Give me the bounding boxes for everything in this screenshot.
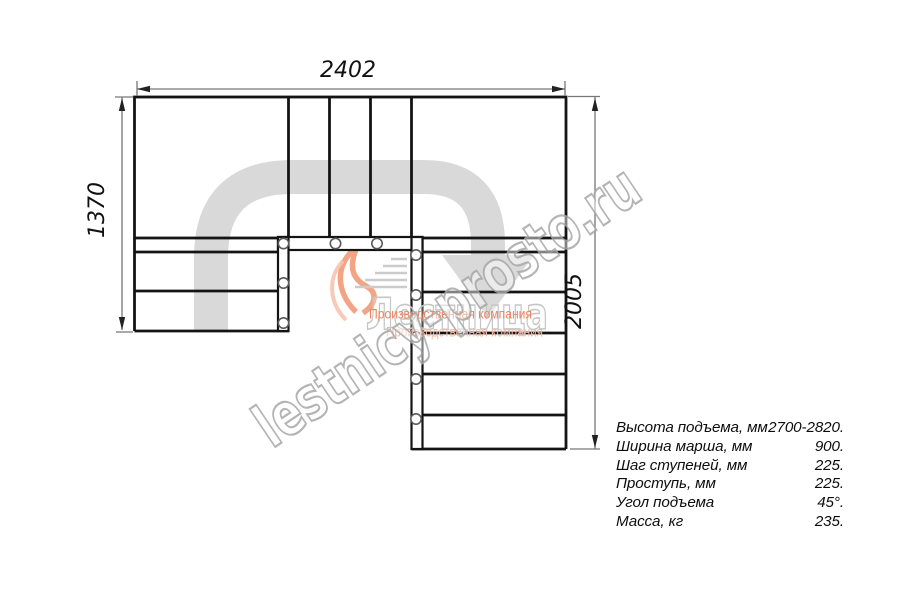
- dimension-arrow: [592, 435, 598, 448]
- spec-row: Высота подъема, мм 2700-2820.: [616, 419, 844, 438]
- spec-row: Угол подъема 45°.: [616, 494, 844, 513]
- baluster-post: [330, 238, 340, 248]
- baluster-post: [411, 374, 421, 384]
- dimension-left: 1370: [85, 97, 133, 332]
- dimension-arrow: [119, 98, 125, 111]
- baluster-post: [278, 278, 288, 288]
- spec-label: Масса, кг: [616, 513, 683, 532]
- baluster-post: [411, 414, 421, 424]
- spec-row: Ширина марша, мм 900.: [616, 438, 844, 457]
- spec-row: Проступь, мм 225.: [616, 475, 844, 494]
- spec-label: Ширина марша, мм: [616, 438, 752, 457]
- dimension-arrow: [592, 98, 598, 111]
- baluster-post: [372, 238, 382, 248]
- baluster-post: [278, 318, 288, 328]
- spec-label: Шаг ступеней, мм: [616, 457, 747, 476]
- specs-table: Высота подъема, мм 2700-2820. Ширина мар…: [616, 419, 844, 532]
- stair-drawing-page: 2402 1370 2005 Лестница: [0, 0, 900, 600]
- spec-value: 2700-2820.: [768, 419, 844, 438]
- dimension-arrow: [552, 86, 565, 92]
- dimension-top: 2402: [137, 58, 565, 96]
- dimension-left-value: 1370: [85, 182, 110, 238]
- spec-label: Проступь, мм: [616, 475, 716, 494]
- baluster-post: [278, 238, 288, 248]
- dimension-arrow: [119, 317, 125, 330]
- spec-row: Масса, кг 235.: [616, 513, 844, 532]
- spec-value: 900.: [815, 438, 844, 457]
- baluster-post: [411, 250, 421, 260]
- spec-label: Угол подъема: [616, 494, 714, 513]
- dimension-right: 2005: [562, 97, 600, 450]
- dimension-arrow: [137, 86, 150, 92]
- spec-label: Высота подъема, мм: [616, 419, 768, 438]
- spec-row: Шаг ступеней, мм 225.: [616, 457, 844, 476]
- spec-value: 235.: [815, 513, 844, 532]
- spec-value: 225.: [815, 475, 844, 494]
- spec-value: 45°.: [817, 494, 844, 513]
- spec-value: 225.: [815, 457, 844, 476]
- dimension-top-value: 2402: [320, 58, 376, 83]
- balustrade-strip-top: [278, 237, 423, 250]
- dimension-right-value: 2005: [562, 273, 587, 329]
